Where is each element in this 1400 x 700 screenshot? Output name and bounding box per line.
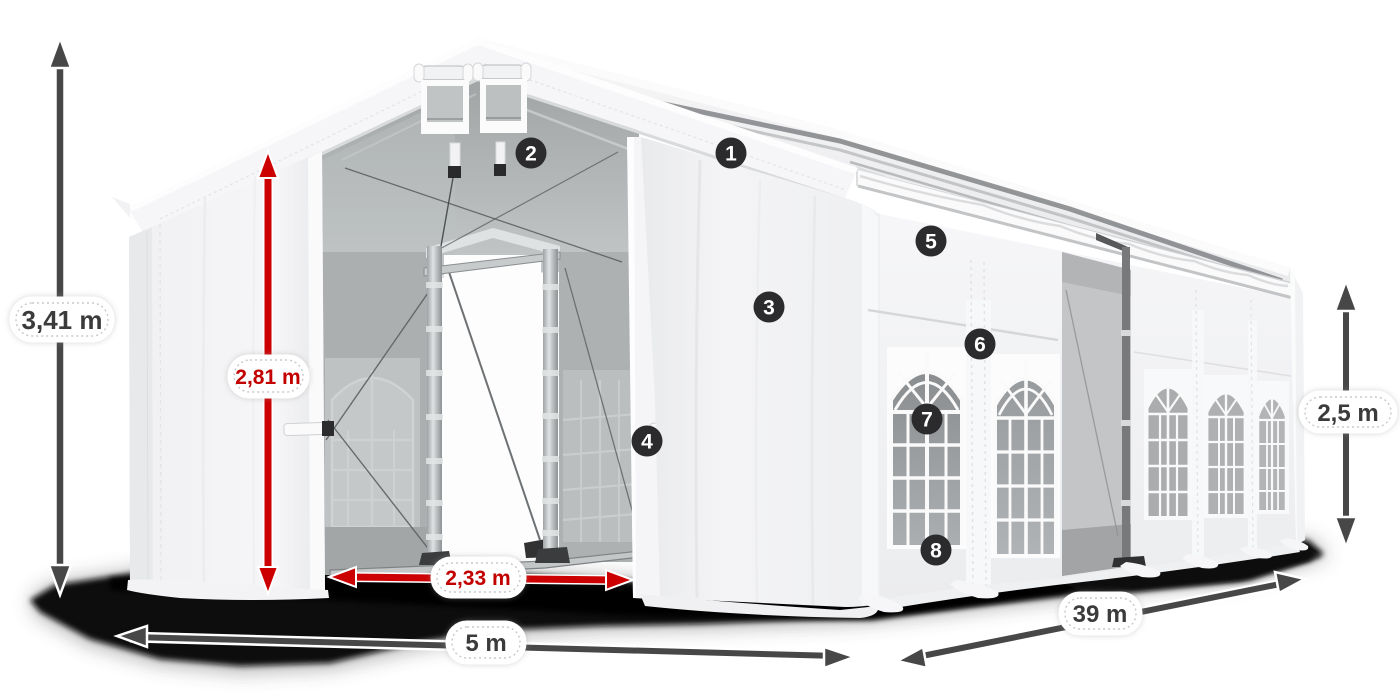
svg-text:6: 6 (974, 334, 986, 357)
svg-text:4: 4 (641, 431, 653, 454)
svg-text:2,33 m: 2,33 m (445, 567, 510, 590)
svg-text:39 m: 39 m (1073, 601, 1128, 628)
svg-text:2: 2 (525, 143, 537, 166)
svg-text:7: 7 (921, 409, 933, 432)
svg-text:2,81 m: 2,81 m (235, 366, 300, 389)
svg-text:2,5 m: 2,5 m (1317, 400, 1378, 427)
svg-text:8: 8 (930, 540, 942, 563)
svg-text:5: 5 (925, 231, 937, 254)
svg-text:5 m: 5 m (465, 630, 506, 657)
svg-text:1: 1 (725, 143, 737, 166)
svg-text:3: 3 (763, 297, 775, 320)
svg-text:3,41 m: 3,41 m (22, 305, 103, 335)
